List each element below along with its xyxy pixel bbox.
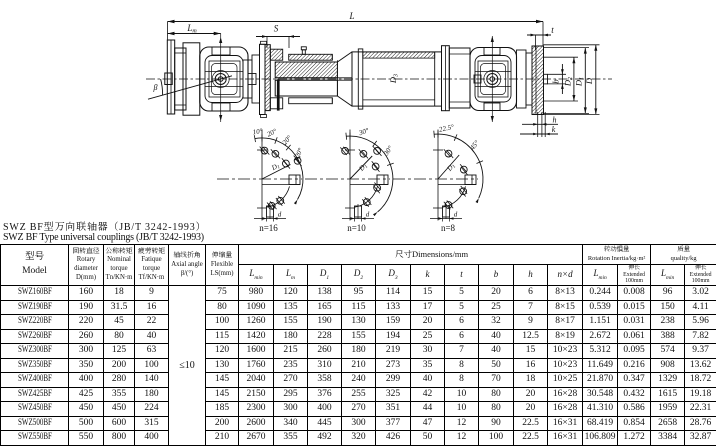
svg-text:n=16: n=16 [259,223,278,233]
svg-text:t: t [551,25,554,35]
svg-text:k: k [552,125,556,134]
svg-text:D2: D2 [563,77,575,87]
svg-text:D1: D1 [270,161,282,173]
svg-text:S: S [274,24,279,34]
svg-text:D1: D1 [357,162,369,174]
svg-text:b: b [551,79,561,83]
svg-text:10°: 10° [252,127,263,136]
svg-text:D: D [584,77,594,85]
svg-text:d: d [278,211,282,219]
svg-text:d: d [454,211,458,219]
svg-text:30°: 30° [382,144,395,158]
svg-text:β: β [153,83,158,92]
svg-text:22.5°: 22.5° [438,123,455,134]
svg-text:h: h [553,116,557,125]
svg-text:d: d [366,211,370,219]
svg-text:L: L [348,11,354,21]
svg-text:n=10: n=10 [347,223,366,233]
svg-text:30°: 30° [357,126,370,137]
svg-text:D3: D3 [388,74,400,84]
svg-text:Lm: Lm [186,23,197,35]
svg-text:20°: 20° [281,134,294,147]
svg-text:D1: D1 [445,162,457,174]
svg-text:45°: 45° [469,139,481,152]
svg-text:20°: 20° [266,127,278,138]
svg-text:n=8: n=8 [441,223,456,233]
